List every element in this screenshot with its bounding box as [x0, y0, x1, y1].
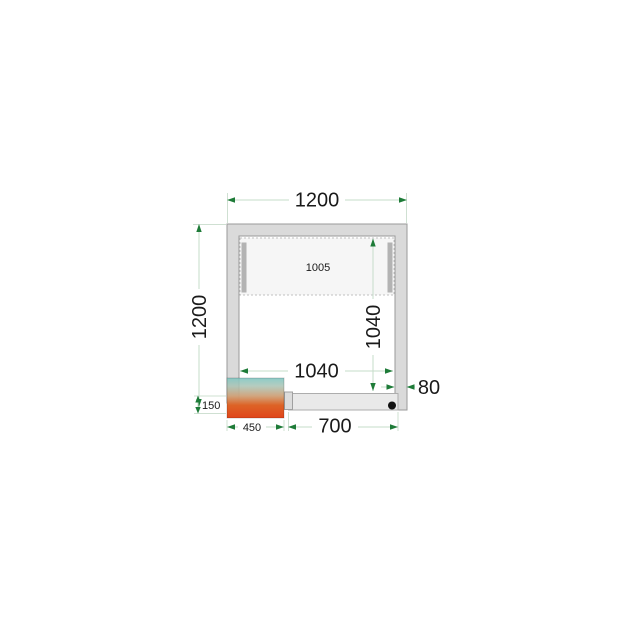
evaporator-width-label: 1005	[306, 262, 330, 274]
dim-door-width: 700	[288, 412, 398, 438]
door-width-label: 700	[318, 416, 351, 438]
cooling-unit	[227, 378, 284, 418]
cold-room-plan-canvas: 1005 1200 1200 1040 1040	[0, 0, 630, 630]
top-width-label: 1200	[295, 190, 340, 212]
evaporator-bar-right	[388, 243, 393, 293]
dim-unit-width: 450	[227, 420, 284, 434]
arrow-right-icon	[276, 424, 284, 429]
door-frame-post	[285, 392, 293, 410]
arrow-left-icon	[240, 368, 248, 373]
wall-thickness-label: 80	[418, 377, 440, 399]
arrow-left-icon	[227, 197, 235, 202]
arrow-up-icon	[196, 224, 201, 232]
arrow-left-icon	[407, 384, 415, 389]
dim-side-height: 1200	[189, 224, 226, 407]
arrow-right-icon	[385, 368, 393, 373]
door-hinge-dot	[388, 402, 396, 410]
cold-room-plan-drawing: 1005 1200 1200 1040 1040	[0, 0, 630, 630]
evaporator-zone: 1005	[240, 238, 394, 295]
side-height-label: 1200	[189, 295, 211, 340]
evaporator-bar-left	[242, 243, 247, 293]
arrow-left-icon	[227, 424, 235, 429]
inner-width-label: 1040	[294, 361, 339, 383]
arrow-down-icon	[370, 383, 375, 391]
arrow-left-icon	[288, 424, 296, 429]
unit-width-label: 450	[243, 422, 261, 434]
dim-top-width: 1200	[227, 190, 407, 224]
arrow-right-icon	[387, 384, 395, 389]
arrow-down-icon	[195, 407, 200, 414]
arrow-right-icon	[399, 197, 407, 202]
unit-offset-label: 150	[202, 400, 220, 412]
door-panel	[289, 394, 399, 411]
arrow-right-icon	[390, 424, 398, 429]
inner-height-label: 1040	[363, 305, 385, 350]
